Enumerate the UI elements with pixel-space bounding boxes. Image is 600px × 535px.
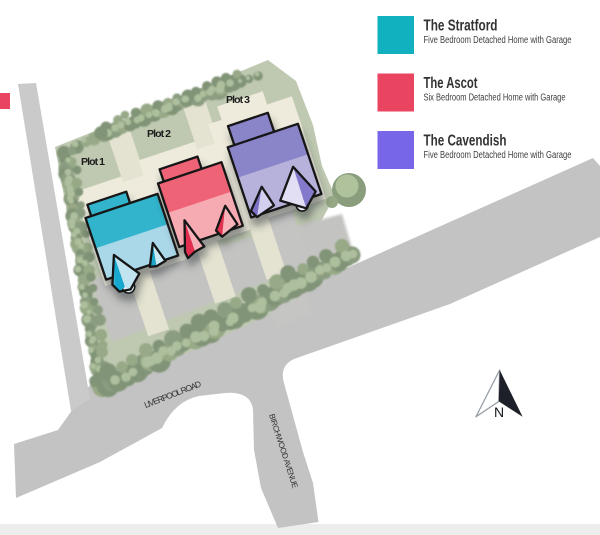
svg-text:Plot 2: Plot 2 — [147, 128, 171, 140]
svg-text:Five Bedroom Detached Home wit: Five Bedroom Detached Home with Garage — [424, 35, 572, 46]
svg-text:Five Bedroom Detached Home wit: Five Bedroom Detached Home with Garage — [424, 150, 572, 161]
svg-text:The Cavendish: The Cavendish — [424, 133, 507, 150]
svg-text:The Stratford: The Stratford — [424, 18, 498, 35]
svg-text:N: N — [494, 404, 504, 420]
svg-text:Six Bedroom Detached Home with: Six Bedroom Detached Home with Garage — [424, 93, 566, 104]
svg-text:Plot 3: Plot 3 — [226, 94, 250, 106]
svg-text:The Ascot: The Ascot — [424, 75, 478, 92]
svg-text:Plot 1: Plot 1 — [81, 156, 105, 168]
